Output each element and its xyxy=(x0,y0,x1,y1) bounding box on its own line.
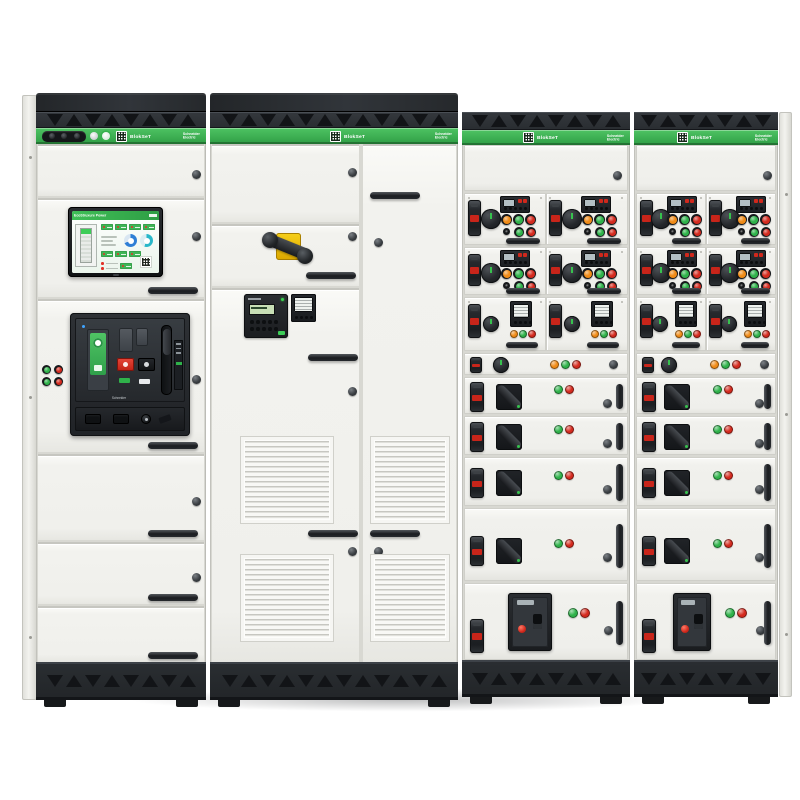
rotary-breaker-handle[interactable] xyxy=(496,384,522,410)
drawer-latch-handle[interactable] xyxy=(470,619,484,653)
drawer-grip-handle[interactable] xyxy=(587,238,621,244)
drawer-side-handle[interactable] xyxy=(764,423,771,450)
rotary-breaker-handle[interactable] xyxy=(664,470,690,496)
pushbutton-black[interactable] xyxy=(503,228,510,235)
rotary-cam-switch[interactable] xyxy=(493,357,509,373)
pushbutton-black[interactable] xyxy=(738,228,745,235)
moulded-case-breaker[interactable] xyxy=(508,593,552,651)
motor-controller-display[interactable] xyxy=(581,196,611,213)
pushbutton-black[interactable] xyxy=(669,228,676,235)
pushbutton-green[interactable] xyxy=(514,227,524,237)
drawer-latch-handle[interactable] xyxy=(642,619,656,653)
controller-red-button[interactable] xyxy=(523,253,527,257)
door-right[interactable] xyxy=(362,144,458,662)
breaker-toggle[interactable] xyxy=(533,614,542,629)
controller-red-button[interactable] xyxy=(604,199,608,203)
panel-lock-knob[interactable] xyxy=(603,485,612,494)
pushbutton-green-start[interactable] xyxy=(513,214,524,225)
rotary-breaker-handle[interactable] xyxy=(496,538,522,564)
door-handle[interactable] xyxy=(308,354,358,361)
pushbutton-red[interactable] xyxy=(526,227,536,237)
drawer-latch-handle[interactable] xyxy=(642,382,656,412)
controller-red-button[interactable] xyxy=(754,253,758,257)
hmi-screen[interactable]: EcoStruxure Power xyxy=(72,211,159,273)
motor-controller-display[interactable] xyxy=(667,250,697,267)
rotary-cam-switch[interactable] xyxy=(562,209,582,229)
band-button[interactable] xyxy=(90,132,98,140)
vent-triangle xyxy=(142,114,158,126)
controller-red-button[interactable] xyxy=(690,199,694,203)
motor-controller-display[interactable] xyxy=(736,250,766,267)
controller-lcd xyxy=(503,253,515,261)
switch-position-mark xyxy=(729,267,731,273)
latch-slot xyxy=(473,426,481,428)
logo-line: Schneider xyxy=(607,134,624,138)
pushbutton-green-start[interactable] xyxy=(748,268,759,279)
band-button-green[interactable] xyxy=(102,132,110,140)
drawer-latch-handle[interactable] xyxy=(468,254,481,286)
drawer-row[interactable] xyxy=(464,297,628,351)
latch-red-tab xyxy=(472,364,480,367)
vent-triangle xyxy=(679,673,695,685)
drawer-side-handle[interactable] xyxy=(764,464,771,501)
door-handle[interactable] xyxy=(148,652,198,659)
withdrawable-drawer[interactable] xyxy=(636,377,776,414)
drawer-latch-handle[interactable] xyxy=(642,536,656,566)
screw xyxy=(540,301,542,303)
drawer-grip-handle[interactable] xyxy=(506,342,538,348)
drawer-latch-handle[interactable] xyxy=(470,468,484,498)
drawer-grip-handle[interactable] xyxy=(672,288,701,294)
controller-red-button[interactable] xyxy=(523,199,527,203)
rotary-cam-switch[interactable] xyxy=(481,209,501,229)
indicator-light-red xyxy=(693,330,701,338)
drawer-latch-handle[interactable] xyxy=(470,382,484,412)
controller-red-button[interactable] xyxy=(685,253,689,257)
drawer-latch-handle[interactable] xyxy=(470,536,484,566)
rotary-cam-switch[interactable] xyxy=(652,316,668,332)
protection-relay[interactable] xyxy=(244,294,288,338)
panel-lock-knob[interactable] xyxy=(192,375,201,384)
panel-lock-knob[interactable] xyxy=(755,553,764,562)
controller-keys[interactable] xyxy=(504,207,507,210)
drawer-side-handle[interactable] xyxy=(616,384,623,409)
panel-lock-knob[interactable] xyxy=(609,360,618,369)
withdrawable-drawer[interactable] xyxy=(706,194,775,244)
pushbutton-orange[interactable] xyxy=(582,214,593,225)
motor-controller-display[interactable] xyxy=(500,196,530,213)
drawer-row[interactable] xyxy=(636,297,776,351)
door-handle[interactable] xyxy=(148,594,198,601)
panel-lock-knob[interactable] xyxy=(348,387,357,396)
door-handle[interactable] xyxy=(148,442,198,449)
relay-label xyxy=(248,298,261,300)
drawer-grip-handle[interactable] xyxy=(741,288,770,294)
acb-racking-handle[interactable] xyxy=(163,329,171,355)
acb-cradle-front xyxy=(75,407,185,431)
pushbutton-red[interactable] xyxy=(692,227,702,237)
button-face xyxy=(750,270,758,278)
withdrawable-drawer[interactable] xyxy=(465,248,546,294)
acb-push-on-button[interactable] xyxy=(138,358,155,371)
hmi-switchboard-diagram[interactable] xyxy=(75,224,97,267)
bolt-hole xyxy=(785,413,788,416)
drawer-latch-handle[interactable] xyxy=(468,200,481,236)
panel-lock-knob[interactable] xyxy=(760,360,769,369)
switch-position-mark xyxy=(571,213,573,219)
rotary-breaker-handle[interactable] xyxy=(496,424,522,450)
withdrawable-drawer[interactable] xyxy=(464,416,628,455)
withdrawable-drawer[interactable] xyxy=(636,416,776,455)
withdrawable-drawer[interactable] xyxy=(637,248,706,294)
door-handle[interactable] xyxy=(148,287,198,294)
feeder-cabinet: BlokSeTSchneiderElectric xyxy=(634,112,778,704)
hmi-status-tile[interactable] xyxy=(101,224,113,230)
schneider-logo: SchneiderElectric xyxy=(755,134,772,141)
relay-keys[interactable] xyxy=(250,320,254,324)
button-face xyxy=(693,270,701,278)
vent-triangle xyxy=(374,675,390,687)
controller-red-button[interactable] xyxy=(685,199,689,203)
button-face xyxy=(740,284,744,288)
vent-triangle xyxy=(567,115,583,127)
rotary-cam-switch[interactable] xyxy=(661,357,677,373)
switch-position-mark xyxy=(660,213,662,219)
pushbutton-green-start[interactable] xyxy=(748,214,759,225)
pushbutton-red-stop[interactable] xyxy=(760,268,771,279)
controller-lcd xyxy=(670,199,682,207)
drawer-row[interactable] xyxy=(636,247,776,295)
pushbutton-red[interactable] xyxy=(761,227,771,237)
breaker-toggle[interactable] xyxy=(694,614,703,629)
withdrawable-drawer[interactable] xyxy=(464,583,628,660)
withdrawable-drawer[interactable] xyxy=(546,298,627,350)
controller-red-button[interactable] xyxy=(599,199,603,203)
drawer-row[interactable] xyxy=(464,247,628,295)
controller-keys[interactable] xyxy=(585,207,588,210)
brand-band: BlokSeTSchneiderElectric xyxy=(462,130,630,145)
hmi-status-tile[interactable] xyxy=(129,224,141,230)
drawer-grip-handle[interactable] xyxy=(506,238,540,244)
drawer-side-handle[interactable] xyxy=(616,524,623,568)
drawer-grip-handle[interactable] xyxy=(741,342,769,348)
vent-triangle xyxy=(317,114,333,126)
pushbutton-orange[interactable] xyxy=(501,268,512,279)
hmi-status-tile[interactable] xyxy=(115,251,127,257)
drawer-grip-handle[interactable] xyxy=(741,238,770,244)
hmi-status-tile[interactable] xyxy=(101,251,113,257)
pushbutton-red[interactable] xyxy=(607,227,617,237)
drawer-grip-handle[interactable] xyxy=(672,238,701,244)
pushbutton-red-stop[interactable] xyxy=(760,214,771,225)
withdrawable-drawer[interactable] xyxy=(636,508,776,581)
latch-red-tab xyxy=(642,267,651,273)
rotary-cam-switch[interactable] xyxy=(564,316,580,332)
drawer-side-handle[interactable] xyxy=(764,384,771,409)
pushbutton-orange[interactable] xyxy=(582,268,593,279)
door-handle[interactable] xyxy=(308,530,358,537)
drawer-row[interactable] xyxy=(636,193,776,245)
panel-lock-knob[interactable] xyxy=(192,573,201,582)
door-left[interactable] xyxy=(210,144,360,662)
indicator-light-red xyxy=(565,385,574,394)
drawer-latch-handle[interactable] xyxy=(549,200,562,236)
feeder-cabinet: BlokSeTSchneiderElectric xyxy=(462,112,630,704)
drawer-latch-handle[interactable] xyxy=(642,422,656,452)
drawer-latch-handle[interactable] xyxy=(640,304,653,338)
drawer-side-handle[interactable] xyxy=(616,601,623,645)
main-switch-rotary-handle[interactable] xyxy=(262,228,314,268)
panel-lock-knob[interactable] xyxy=(348,168,357,177)
pushbutton-black[interactable] xyxy=(584,228,591,235)
ventilation-grille xyxy=(462,112,630,130)
drawer-side-handle[interactable] xyxy=(616,464,623,501)
pushbutton-green-start[interactable] xyxy=(513,268,524,279)
pushbutton-red-stop[interactable] xyxy=(691,268,702,279)
latch-red-tab xyxy=(644,481,654,487)
latch-red-tab xyxy=(551,215,560,222)
door-handle[interactable] xyxy=(306,272,356,279)
pushbutton-green[interactable] xyxy=(749,227,759,237)
controller-red-button[interactable] xyxy=(599,253,603,257)
rotary-cam-switch[interactable] xyxy=(721,316,737,332)
pushbutton-red-stop[interactable] xyxy=(525,214,536,225)
hmi-status-tile[interactable] xyxy=(143,224,155,230)
meter-buttons[interactable] xyxy=(748,321,751,324)
controller-lcd xyxy=(584,253,596,261)
drawer-latch-handle[interactable] xyxy=(549,304,562,338)
pushbutton-green-start[interactable] xyxy=(679,214,690,225)
withdrawable-drawer[interactable] xyxy=(706,248,775,294)
pushbutton-red[interactable] xyxy=(54,377,63,386)
controller-red-button[interactable] xyxy=(754,199,758,203)
drawer-latch-handle[interactable] xyxy=(549,254,562,286)
button-face xyxy=(682,229,689,236)
power-meter[interactable] xyxy=(591,301,613,327)
drawer-latch-handle[interactable] xyxy=(642,468,656,498)
panel-lock-knob[interactable] xyxy=(348,547,357,556)
switch-grip xyxy=(297,248,313,264)
controller-red-button[interactable] xyxy=(759,199,763,203)
power-meter[interactable] xyxy=(675,301,697,327)
pushbutton-green[interactable] xyxy=(595,227,605,237)
drawer-latch-handle[interactable] xyxy=(468,304,481,338)
pushbutton-green-start[interactable] xyxy=(594,214,605,225)
pushbutton-red-stop[interactable] xyxy=(606,268,617,279)
latch-red-tab xyxy=(472,395,482,401)
withdrawable-drawer[interactable] xyxy=(465,194,546,244)
cradle-slot xyxy=(113,414,129,424)
motor-controller-display[interactable] xyxy=(736,196,766,213)
withdrawable-drawer[interactable] xyxy=(465,298,546,350)
controller-keys[interactable] xyxy=(671,261,674,264)
motor-controller-display[interactable] xyxy=(500,250,530,267)
pushbutton-red-stop[interactable] xyxy=(525,268,536,279)
controller-red-button[interactable] xyxy=(518,199,522,203)
switch-position-mark xyxy=(728,319,730,323)
hmi-text-line xyxy=(101,240,113,242)
vent-triangle xyxy=(393,675,409,687)
hmi-status-tile[interactable] xyxy=(115,224,127,230)
meter-buttons[interactable] xyxy=(679,321,682,324)
relay-lcd xyxy=(249,304,275,315)
controller-red-button[interactable] xyxy=(690,253,694,257)
relay-keys[interactable] xyxy=(250,327,254,331)
withdrawable-drawer[interactable] xyxy=(464,508,628,581)
pushbutton-green[interactable] xyxy=(42,365,51,374)
hmi-qr-code xyxy=(140,256,152,268)
pushbutton-orange[interactable] xyxy=(736,214,747,225)
withdrawable-drawer[interactable] xyxy=(637,298,706,350)
breaker-display xyxy=(517,600,534,605)
panel-lock-knob[interactable] xyxy=(348,232,357,241)
button-face xyxy=(693,216,701,224)
hmi-touchscreen[interactable]: EcoStruxure Power xyxy=(68,207,163,277)
controller-keys[interactable] xyxy=(585,261,588,264)
panel-lock-knob[interactable] xyxy=(603,553,612,562)
panel-lock-knob[interactable] xyxy=(374,238,383,247)
drawer-latch-handle[interactable] xyxy=(470,422,484,452)
bolt-hole xyxy=(29,636,32,639)
moulded-case-breaker[interactable] xyxy=(673,593,711,651)
controller-keys[interactable] xyxy=(504,261,507,264)
controller-red-button[interactable] xyxy=(759,253,763,257)
meter-buttons[interactable] xyxy=(514,321,517,324)
vent-triangle xyxy=(336,114,352,126)
pushbutton-green-start[interactable] xyxy=(594,268,605,279)
drawer-grip-handle[interactable] xyxy=(587,342,619,348)
charging-handle-socket[interactable] xyxy=(141,414,151,424)
bolt-hole xyxy=(29,396,32,399)
vent-triangle xyxy=(717,115,733,127)
panel-lock-knob[interactable] xyxy=(603,439,612,448)
rotary-breaker-handle[interactable] xyxy=(664,538,690,564)
indicator-light-orange xyxy=(675,330,683,338)
panel-lock-knob[interactable] xyxy=(604,626,613,635)
indicator-light-green xyxy=(753,330,761,338)
indicator-light-red xyxy=(565,425,574,434)
withdrawable-drawer[interactable] xyxy=(636,583,776,660)
controller-keys[interactable] xyxy=(671,207,674,210)
drawer-side-handle[interactable] xyxy=(764,601,771,645)
latch-red-tab xyxy=(644,395,654,401)
pushbutton-orange[interactable] xyxy=(667,214,678,225)
drawer-row[interactable] xyxy=(464,193,628,245)
drawer-latch-handle[interactable] xyxy=(470,357,482,373)
door-handle[interactable] xyxy=(148,530,198,537)
button-face xyxy=(503,270,511,278)
meter-buttons[interactable] xyxy=(295,316,298,319)
controller-keys[interactable] xyxy=(740,207,743,210)
rotary-cam-switch[interactable] xyxy=(562,263,582,283)
pushbutton-green[interactable] xyxy=(680,227,690,237)
panel-lock-knob[interactable] xyxy=(192,232,201,241)
panel-lock-knob[interactable] xyxy=(755,399,764,408)
drawer-grip-handle[interactable] xyxy=(672,342,700,348)
button-face xyxy=(608,270,616,278)
withdrawable-drawer[interactable] xyxy=(636,457,776,506)
withdrawable-drawer[interactable] xyxy=(546,248,627,294)
switch-position-mark xyxy=(517,445,520,448)
power-meter[interactable] xyxy=(291,294,316,322)
hmi-title: EcoStruxure Power xyxy=(74,214,106,218)
pushbutton-red[interactable] xyxy=(54,365,63,374)
vent-triangle xyxy=(279,114,295,126)
meter-lcd xyxy=(594,304,610,318)
panel-lock-knob[interactable] xyxy=(613,171,622,180)
pushbutton-green[interactable] xyxy=(42,377,51,386)
withdrawable-drawer[interactable] xyxy=(637,194,706,244)
switch-position-mark xyxy=(660,267,662,273)
panel-lock-knob[interactable] xyxy=(192,497,201,506)
drawer-latch-handle[interactable] xyxy=(642,357,654,373)
drawer-grip-handle[interactable] xyxy=(506,288,540,294)
motor-controller-display[interactable] xyxy=(581,250,611,267)
rotary-breaker-handle[interactable] xyxy=(664,384,690,410)
panel-lock-knob[interactable] xyxy=(192,170,201,179)
door-handle[interactable] xyxy=(370,192,420,199)
pushbutton-green-start[interactable] xyxy=(679,268,690,279)
vent-triangle xyxy=(241,675,257,687)
pushbutton-red-stop[interactable] xyxy=(606,214,617,225)
pushbutton-orange[interactable] xyxy=(736,268,747,279)
panel-lock-knob[interactable] xyxy=(755,439,764,448)
power-meter[interactable] xyxy=(510,301,532,327)
indicator-light-orange xyxy=(510,330,518,338)
drawer-side-handle[interactable] xyxy=(616,423,623,450)
controller-keys[interactable] xyxy=(740,261,743,264)
withdrawable-drawer[interactable] xyxy=(464,353,628,375)
controller-red-button[interactable] xyxy=(604,253,608,257)
pushbutton-orange[interactable] xyxy=(501,214,512,225)
withdrawable-drawer[interactable] xyxy=(546,194,627,244)
withdrawable-drawer[interactable] xyxy=(636,353,776,375)
drawer-grip-handle[interactable] xyxy=(587,288,621,294)
withdrawable-drawer[interactable] xyxy=(464,377,628,414)
vent-triangle xyxy=(222,675,238,687)
rotary-breaker-handle[interactable] xyxy=(496,470,522,496)
button-face xyxy=(515,216,523,224)
power-meter[interactable] xyxy=(744,301,766,327)
rotary-cam-switch[interactable] xyxy=(483,316,499,332)
controller-red-button[interactable] xyxy=(518,253,522,257)
button-face xyxy=(762,270,770,278)
acb-push-off-button[interactable] xyxy=(117,358,134,371)
indicator-light-green xyxy=(554,425,563,434)
acb-brand-text: Schneider xyxy=(99,397,139,400)
hmi-status-tile[interactable] xyxy=(120,263,132,269)
indicator-light-red xyxy=(565,471,574,480)
drawer-latch-handle[interactable] xyxy=(709,304,722,338)
rotary-breaker-handle[interactable] xyxy=(664,424,690,450)
panel-lock-knob[interactable] xyxy=(603,399,612,408)
rotary-cam-switch[interactable] xyxy=(481,263,501,283)
withdrawable-drawer[interactable] xyxy=(706,298,775,350)
meter-buttons[interactable] xyxy=(595,321,598,324)
hmi-header: EcoStruxure Power xyxy=(72,211,159,220)
motor-controller-display[interactable] xyxy=(667,196,697,213)
racking-lever[interactable] xyxy=(158,414,171,424)
screw xyxy=(769,301,771,303)
withdrawable-drawer[interactable] xyxy=(464,457,628,506)
panel-lock-knob[interactable] xyxy=(763,171,772,180)
schneider-logo: SchneiderElectric xyxy=(435,133,452,140)
pushbutton-orange[interactable] xyxy=(667,268,678,279)
door-handle[interactable] xyxy=(370,530,420,537)
panel-lock-knob[interactable] xyxy=(755,485,764,494)
pushbutton-red-stop[interactable] xyxy=(691,214,702,225)
drawer-side-handle[interactable] xyxy=(764,524,771,568)
